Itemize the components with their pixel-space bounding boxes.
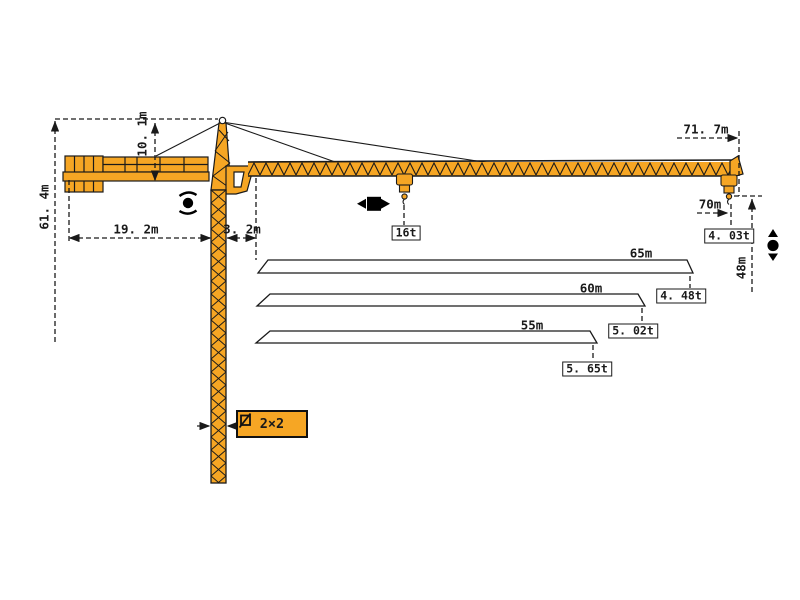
slewing-rotation-icon (180, 192, 197, 213)
max-load-box: 16t (392, 226, 421, 241)
crane-diagram: 61. 4m 10. 1m 19. 2m 3. 2m 71. 7m 70m 48… (0, 0, 800, 600)
jib-60m-label: 60m (580, 281, 603, 296)
trolley-mid (397, 174, 413, 205)
tip-load-60m-box: 5. 02t (608, 324, 658, 339)
counter-jib-length-label: 19. 2m (113, 222, 158, 237)
hoist-up-down-icon (767, 229, 778, 261)
hook-mid (402, 194, 407, 199)
jib-outline-60m (257, 294, 645, 306)
trolley-tip (721, 175, 737, 205)
tip-load-55m-box: 5. 65t (562, 362, 612, 377)
square-section-icon (238, 412, 253, 429)
jib-tip (730, 156, 743, 176)
counter-jib-beam (63, 172, 209, 181)
hook-height-label: 48m (734, 257, 749, 280)
jib-65m-label: 65m (630, 246, 653, 261)
tip-radius-label: 70m (699, 197, 722, 212)
total-height-label: 61. 4m (37, 184, 52, 229)
mast-section-box: 2×2 (236, 410, 308, 438)
hook-tip (726, 194, 731, 199)
jib-root-offset-label: 3. 2m (223, 222, 261, 237)
trolley-travel-icon (357, 197, 390, 211)
jib-55m-label: 55m (521, 318, 544, 333)
jib-outline-65m (258, 260, 693, 273)
mast-section-label: 2×2 (260, 416, 284, 432)
counter-jib (63, 156, 209, 192)
tip-load-65m-box: 4. 48t (656, 289, 706, 304)
max-radius-label: 71. 7m (683, 122, 728, 137)
tip-load-70m-box: 4. 03t (704, 229, 754, 244)
apex-pin (219, 117, 225, 123)
main-jib (248, 156, 743, 176)
jib-outline-55m (256, 331, 597, 343)
tower-head-height-label: 10. 1m (135, 111, 150, 156)
